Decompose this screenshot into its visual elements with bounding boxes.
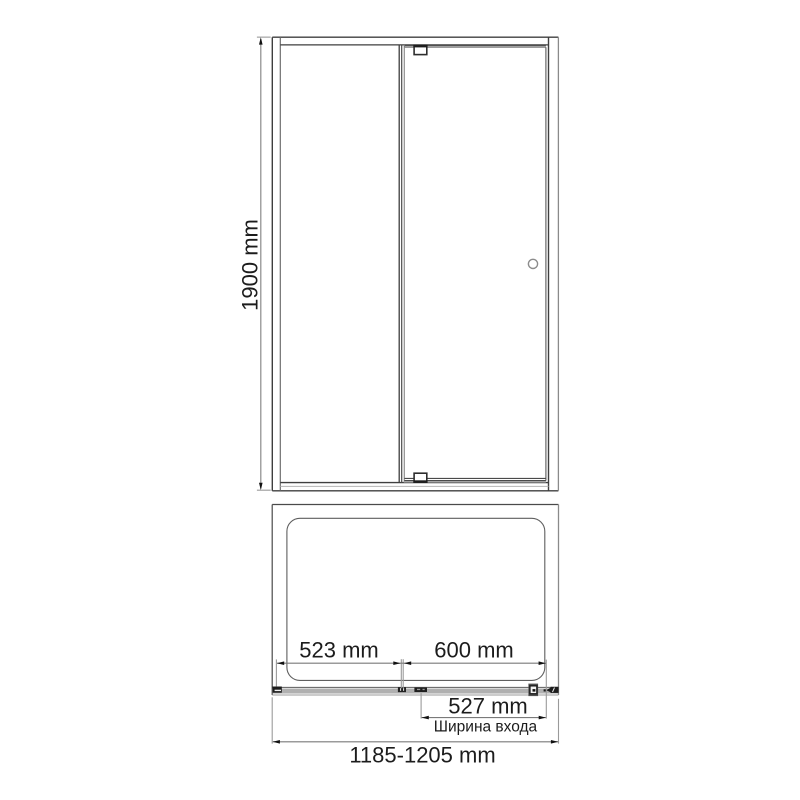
svg-text:Ширина входа: Ширина входа <box>434 719 538 736</box>
svg-text:1185-1205 mm: 1185-1205 mm <box>349 742 495 767</box>
svg-text:523 mm: 523 mm <box>299 638 378 663</box>
svg-text:527 mm: 527 mm <box>448 693 527 718</box>
svg-text:600 mm: 600 mm <box>434 638 513 663</box>
svg-text:1900 mm: 1900 mm <box>237 219 262 311</box>
